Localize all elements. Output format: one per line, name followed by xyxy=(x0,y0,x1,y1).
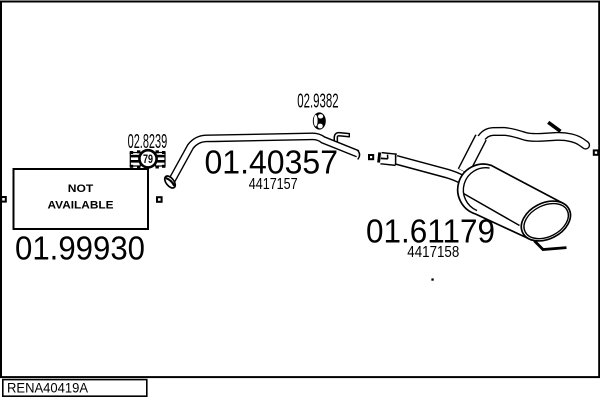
svg-text:AVAILABLE: AVAILABLE xyxy=(48,199,114,211)
svg-text:4417157: 4417157 xyxy=(249,176,298,193)
svg-text:01.99930: 01.99930 xyxy=(15,230,145,267)
svg-text:79: 79 xyxy=(143,154,153,166)
svg-text:NOT: NOT xyxy=(68,183,94,195)
svg-text:02.9382: 02.9382 xyxy=(297,91,338,113)
svg-text:4417158: 4417158 xyxy=(407,244,459,261)
svg-text:RENA40419A: RENA40419A xyxy=(7,380,89,396)
